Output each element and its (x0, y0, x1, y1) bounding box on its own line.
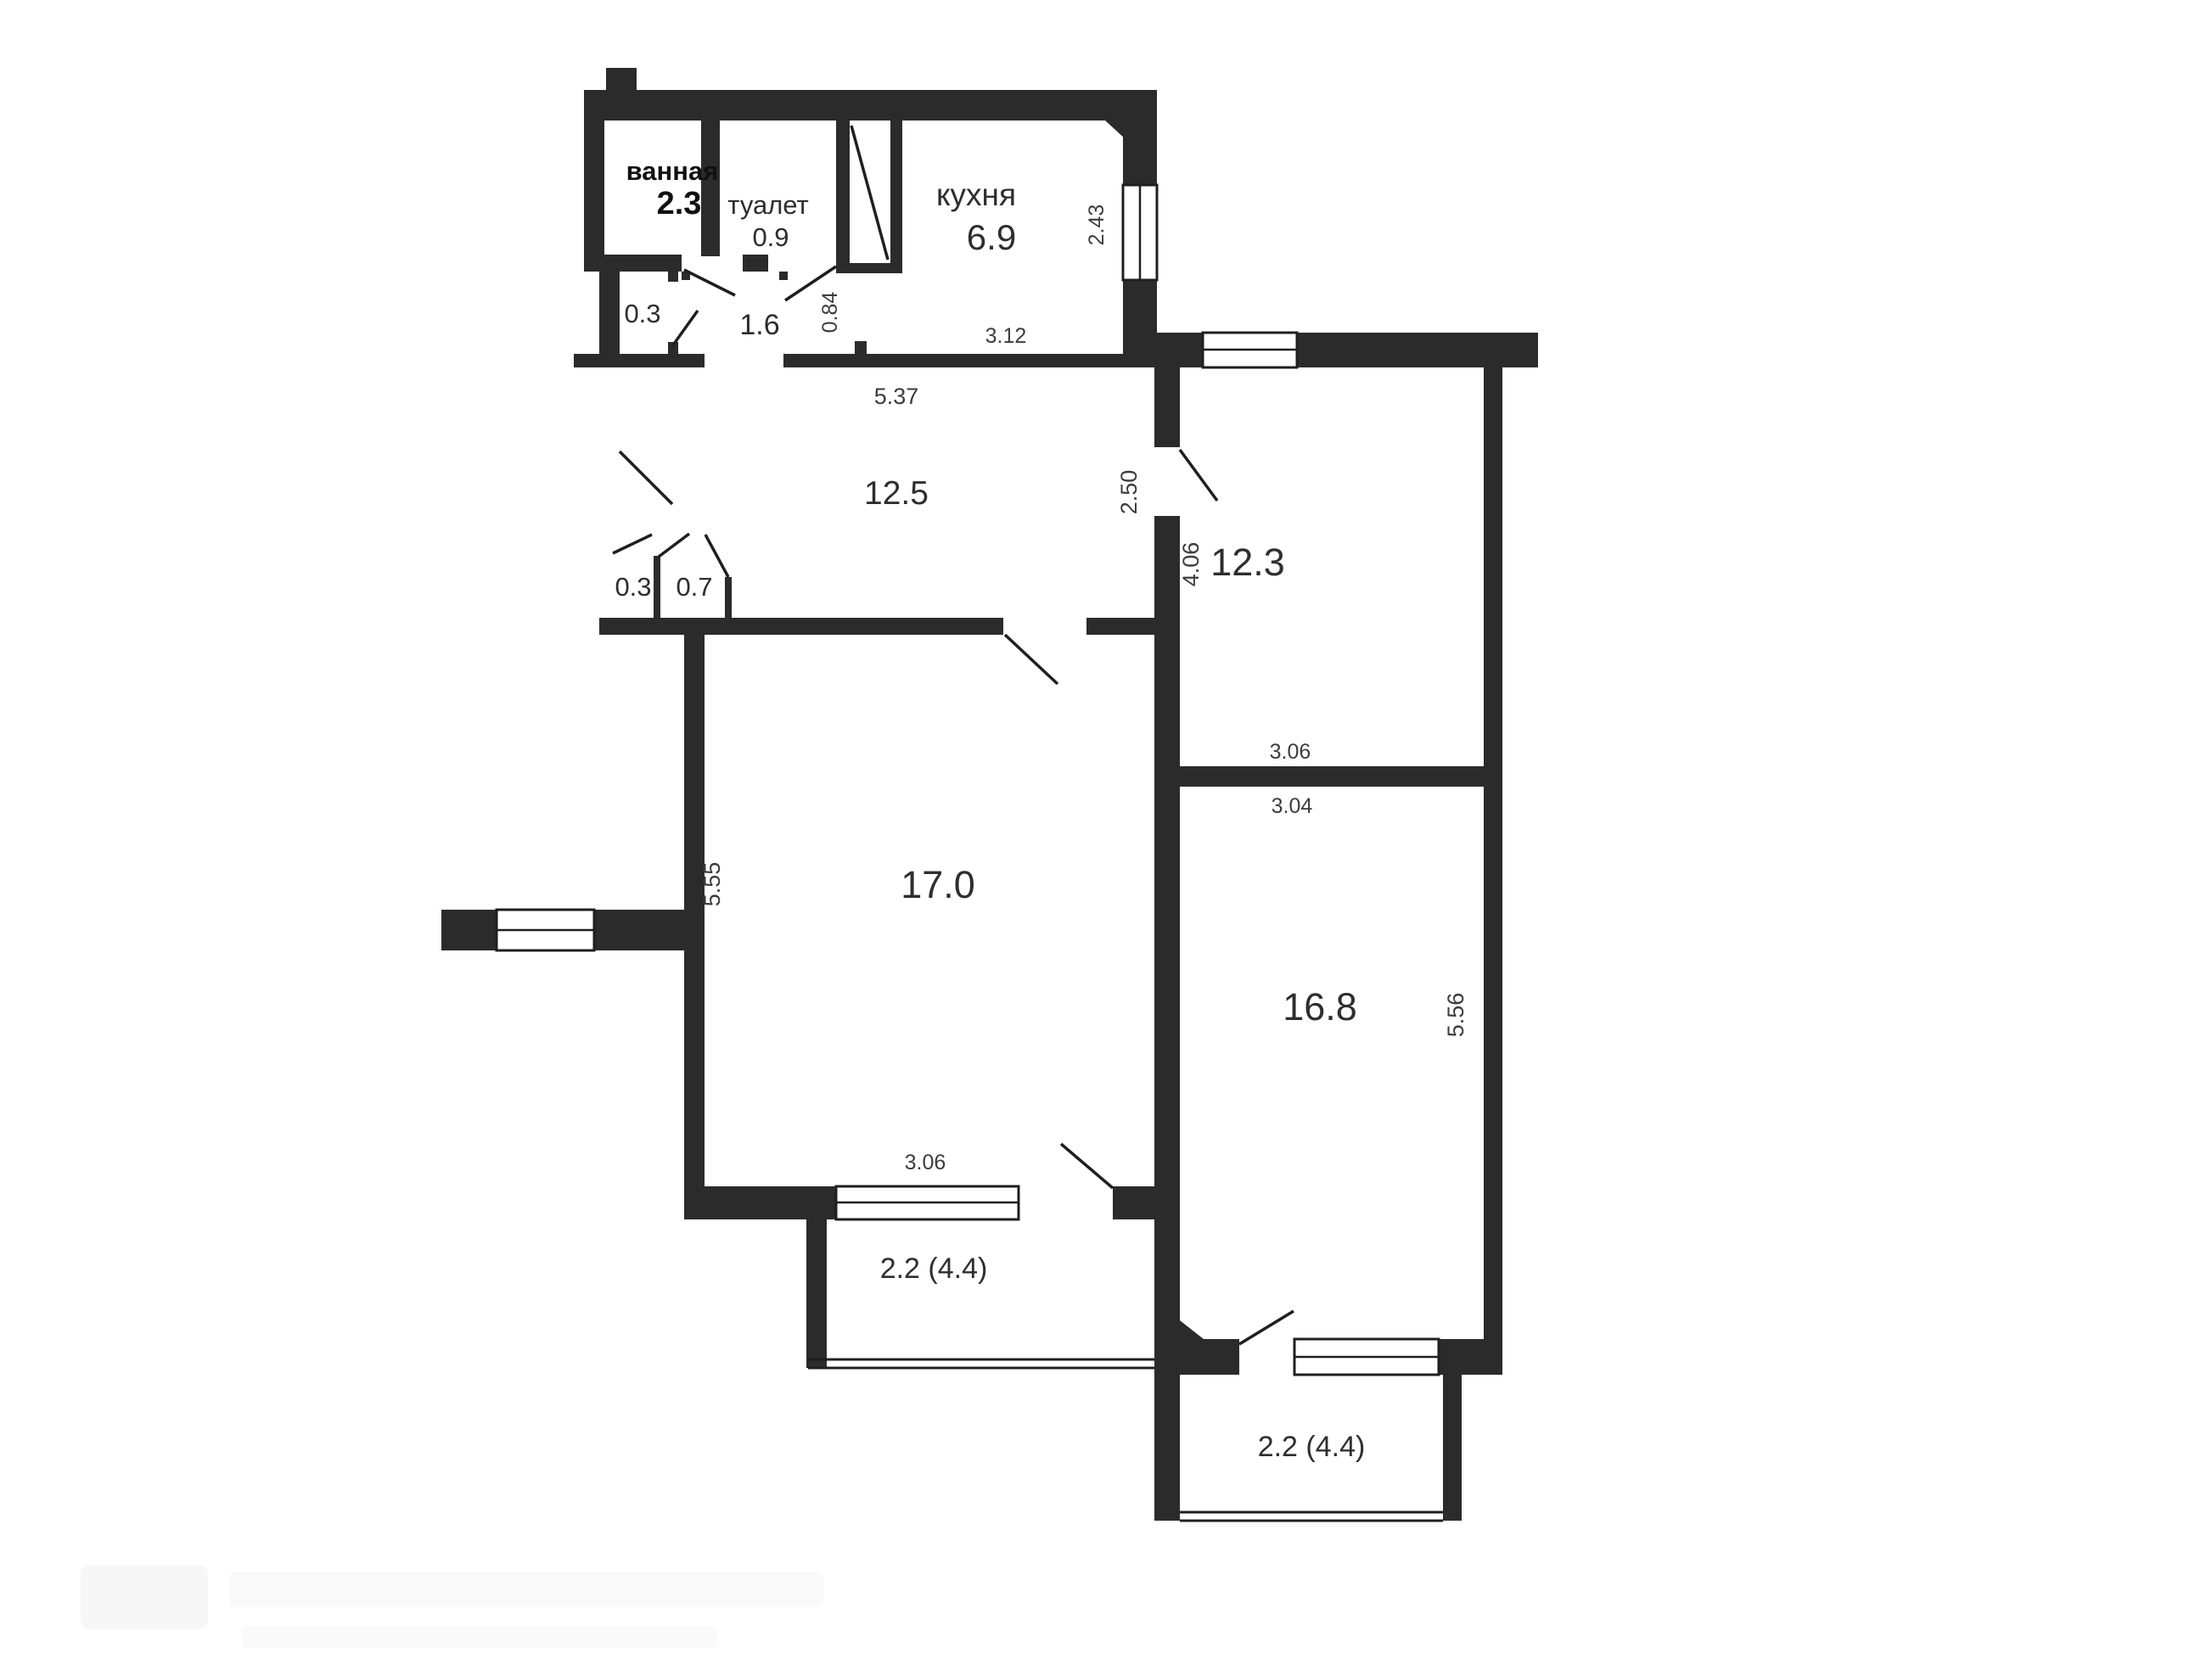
wall-top-outer (584, 90, 1157, 121)
balcony-right-door-swing (1239, 1311, 1294, 1344)
room-b-area: 17.0 (901, 863, 975, 906)
bathroom-area: 2.3 (657, 186, 702, 221)
balcony-right-area: 2.2 (4.4) (1258, 1431, 1366, 1463)
wall-interior-upper (1154, 367, 1180, 447)
door-swings (613, 126, 1294, 1344)
vent-shaft-diagonal (851, 126, 888, 260)
wall-balcony-left-a (684, 1186, 836, 1219)
neighbour-window-icon (497, 910, 594, 950)
wall-balcony-left-b (1113, 1186, 1154, 1219)
wall-left-outer-upper (584, 90, 604, 270)
dim-hall-passage: 0.84 (818, 292, 842, 333)
toilet-name: туалет (727, 190, 808, 220)
dim-room-a-depth: 4.06 (1178, 542, 1204, 587)
watermark (81, 1566, 823, 1648)
watermark-subtext-bar (242, 1626, 717, 1648)
wall-kitchen-bottom-step (855, 341, 867, 354)
closet-a-door-swing (613, 535, 652, 553)
dim-room-a-width: 3.06 (1270, 740, 1311, 764)
room-b-door-swing (1005, 635, 1058, 684)
wall-neighbour-stub-right (594, 910, 684, 950)
closet-entry-area: 0.3 (624, 299, 660, 328)
entry-closet-door-swing (672, 311, 698, 346)
toilet-area: 0.9 (752, 222, 789, 252)
wall-balcony-right-block (1439, 1339, 1502, 1375)
wall-bath-bottom (584, 255, 682, 272)
wall-kitchen-left (890, 121, 902, 273)
room-c-area: 16.8 (1283, 985, 1357, 1028)
wall-room-b-left (684, 635, 705, 1186)
wall-toilet-bottom (743, 255, 768, 272)
room-a-area: 12.3 (1210, 541, 1285, 584)
wall-left-hall (599, 255, 620, 367)
wall-closet-b-right (725, 577, 732, 619)
wall-neighbour-stub-left (441, 910, 497, 950)
wall-room-a-c-divider (1154, 766, 1484, 787)
balcony-left-area: 2.2 (4.4) (880, 1253, 988, 1285)
wall-kitchen-bottom (783, 354, 1157, 367)
hall-area: 1.6 (739, 309, 779, 341)
kitchen-name: кухня (936, 177, 1016, 212)
kitchen-area: 6.9 (967, 217, 1016, 257)
closet-b-area: 0.7 (676, 572, 712, 602)
dim-kitchen-width: 3.12 (985, 324, 1027, 348)
kitchen-window-icon (1123, 185, 1157, 280)
dim-room-c-depth: 5.56 (1443, 993, 1468, 1038)
corridor-area: 12.5 (864, 475, 929, 512)
wall-closet-a-b-divider (654, 556, 660, 619)
bathroom-door-swing (684, 270, 735, 295)
wall-kitchen-right-lower (1123, 280, 1157, 367)
bathroom-name: ванная (626, 156, 719, 186)
wall-balcony-right-side (1443, 1375, 1462, 1521)
balcony-right-window-icon (1294, 1339, 1439, 1375)
wall-bath-toilet-divider (701, 121, 720, 256)
dim-kitchen-depth: 2.43 (1085, 205, 1109, 246)
entry-door-swing (620, 451, 672, 504)
floor-plan-drawing: ванная 2.3 туалет 0.9 кухня 6.9 0.3 1.6 … (0, 0, 2212, 1659)
room-a-door-swing (1180, 450, 1217, 501)
watermark-text-bar (229, 1572, 823, 1607)
wall-corridor-bottom-left (599, 618, 1003, 635)
wall-interior-main (1154, 516, 1180, 1521)
wall-toilet-right (836, 121, 850, 273)
dim-balcony-left-width: 3.06 (905, 1151, 946, 1174)
dim-corridor-width: 5.37 (874, 384, 919, 409)
room-a-window-icon (1203, 333, 1297, 367)
floor-plan-page: ванная 2.3 туалет 0.9 кухня 6.9 0.3 1.6 … (0, 0, 2212, 1659)
closet-b-door-left (659, 534, 689, 557)
wall-room-a-top-right (1297, 333, 1538, 367)
dim-room-b-depth: 5.55 (699, 862, 725, 907)
wall-room-a-top-left (1157, 333, 1203, 367)
dim-room-a-entry: 2.50 (1116, 470, 1142, 515)
wall-balcony-right-top (1180, 1320, 1239, 1375)
balcony-left-door-swing (1061, 1144, 1113, 1188)
wall-corridor-bottom-right (1086, 618, 1154, 635)
wall-shaft-bottom (836, 263, 902, 273)
wall-right-outer (1484, 367, 1502, 1375)
dim-room-c-width: 3.04 (1272, 794, 1313, 818)
closet-a-area: 0.3 (615, 572, 651, 602)
wall-closet-tick-top (668, 270, 678, 282)
wall-door-nub-toilet (779, 272, 788, 280)
closet-b-door-right (705, 535, 728, 577)
walls (441, 68, 1538, 1521)
balcony-left-window-icon (836, 1186, 1019, 1219)
wall-hall-bottom (574, 354, 705, 367)
agency-logo-icon (81, 1566, 208, 1629)
wall-balcony-left-side (806, 1219, 827, 1368)
